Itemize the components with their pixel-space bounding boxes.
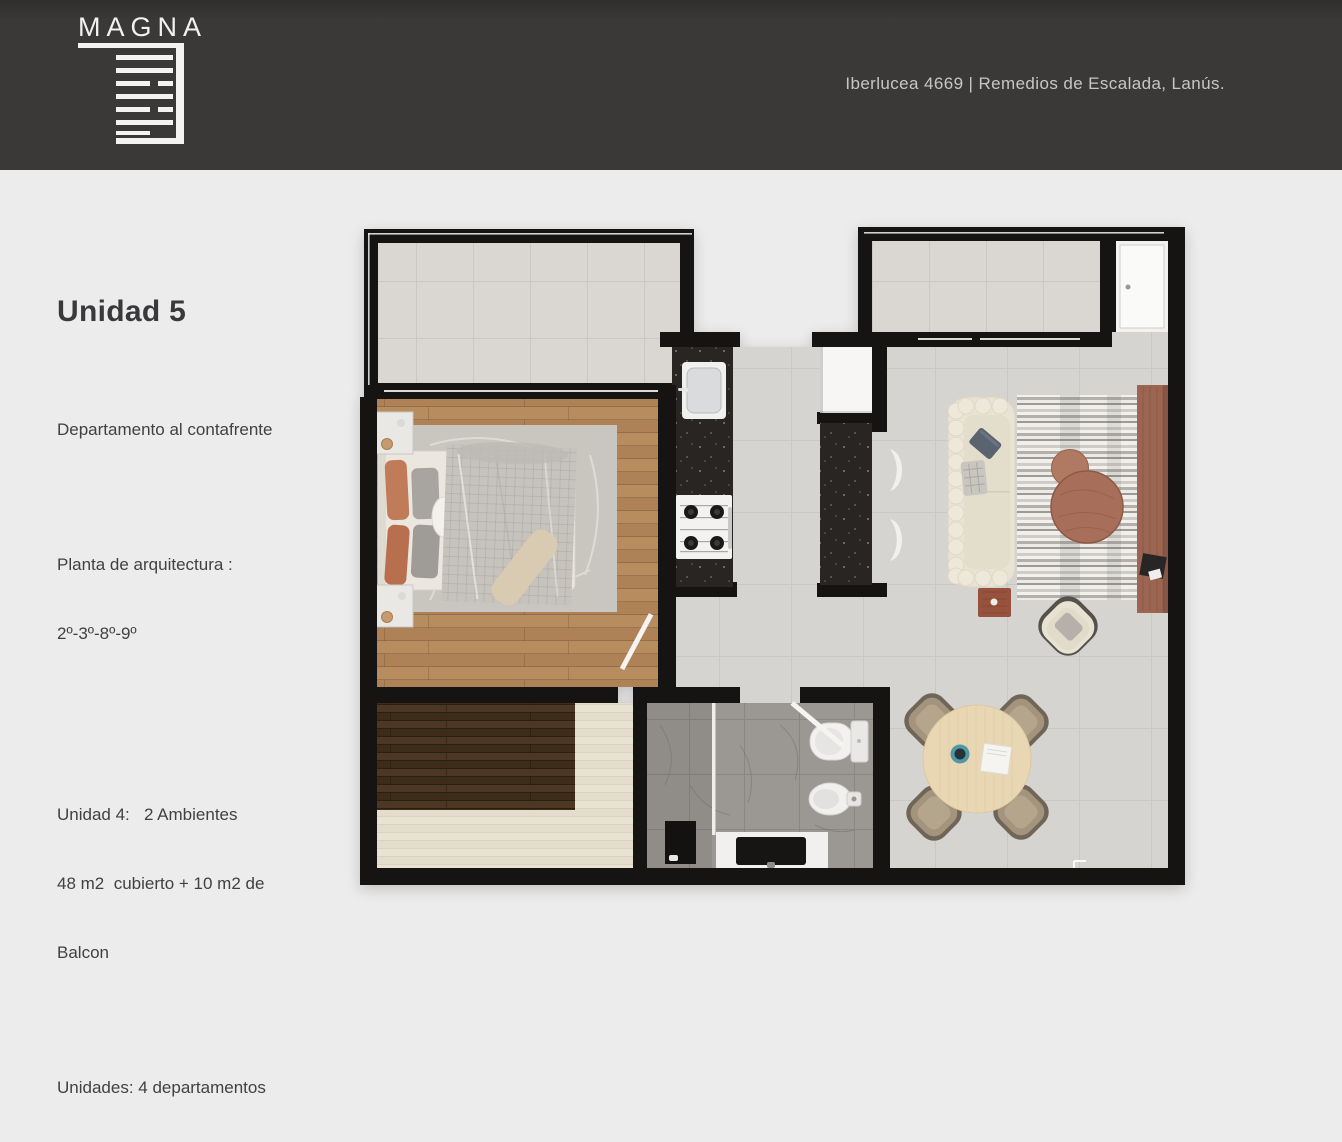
project-address: Iberlucea 4669 | Remedios de Escalada, L… [845, 74, 1225, 94]
vanity [716, 832, 828, 868]
bottom-wall [360, 868, 1185, 885]
bedroom-right-wall [658, 385, 676, 703]
floor-plan [360, 225, 1185, 885]
counter-right [820, 423, 872, 585]
area-line1: 48 m2 cubierto + 10 m2 de [57, 872, 357, 895]
header-bar: MAGNA Iberlucea 4669 | Remedios de Escal… [0, 0, 1342, 170]
glass-railing [864, 232, 1164, 234]
entry-door [820, 347, 872, 413]
oven-handle [728, 507, 732, 549]
plant-floors: 2º-3º-8º-9º [57, 622, 357, 645]
area-line2: Balcon [57, 941, 357, 964]
side-table [978, 588, 1011, 617]
lamp [382, 439, 393, 450]
plant-label: Planta de arquitectura : [57, 553, 357, 576]
nightstand-top [375, 412, 413, 454]
sliding-door-line [384, 390, 676, 392]
pillow-rust [384, 459, 409, 520]
sink-basin [736, 837, 806, 865]
plant-block: Planta de arquitectura : 2º-3º-8º-9º [57, 507, 357, 691]
left-wall [360, 397, 377, 885]
terrace-deck [377, 703, 575, 810]
sofa-throw [960, 460, 987, 496]
door-handle [1126, 285, 1131, 290]
sofa [948, 397, 1015, 587]
bedroom [375, 399, 658, 687]
units-line: Unidades: 4 departamentos [57, 1076, 357, 1099]
dining-table [923, 705, 1031, 813]
unit-subtitle: Departamento al contafrente [57, 418, 357, 441]
shower-glass [712, 703, 716, 835]
tv-unit [1137, 385, 1168, 613]
unit-info-panel: Unidad 5 Departamento al contafrente Pla… [57, 250, 357, 1142]
notepad [980, 743, 1012, 775]
rear-balcony [858, 227, 1168, 347]
unit-line: Unidad 4: 2 Ambientes [57, 803, 357, 826]
brand-logo: MAGNA [78, 12, 207, 144]
front-balcony [364, 229, 694, 399]
stove [676, 495, 732, 559]
lamp [382, 612, 393, 623]
unit-details-block: Unidad 4: 2 Ambientes 48 m2 cubierto + 1… [57, 757, 357, 1010]
bathroom [647, 703, 873, 868]
magna-building-icon [78, 43, 184, 144]
unit-title: Unidad 5 [57, 296, 357, 328]
storage-closet [1116, 241, 1168, 332]
glass-railing [368, 233, 692, 235]
right-wall [1168, 227, 1185, 885]
terrace [377, 703, 633, 868]
nightstand-bottom [375, 585, 413, 627]
brand-name: MAGNA [78, 12, 207, 42]
pillow-rust [384, 524, 410, 585]
kitchen-sink [678, 362, 726, 419]
